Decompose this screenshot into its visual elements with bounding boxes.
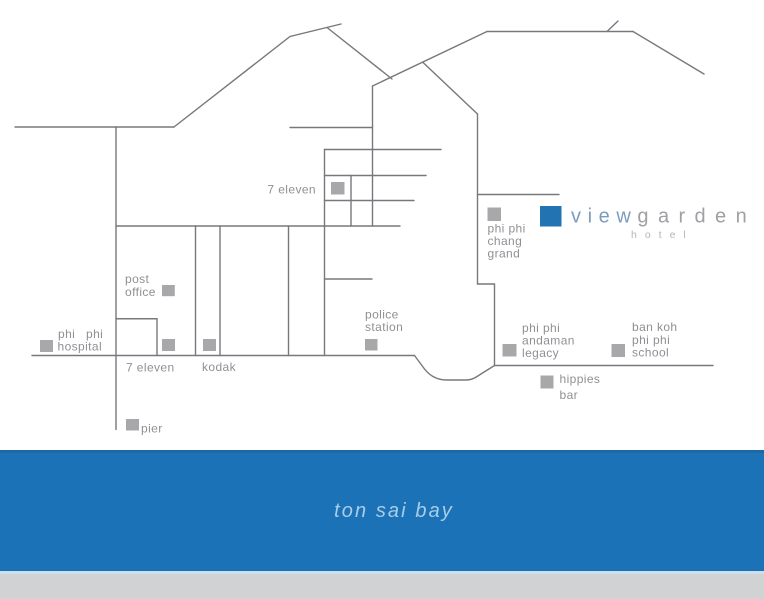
svg-text:ton sai bay: ton sai bay [334,500,454,522]
svg-text:hotel: hotel [631,229,694,241]
svg-text:school: school [632,346,669,360]
svg-text:post: post [125,272,150,286]
svg-text:grand: grand [488,247,521,261]
svg-text:hospital: hospital [58,340,103,354]
svg-text:kodak: kodak [202,360,237,374]
svg-text:7 eleven: 7 eleven [126,361,175,375]
svg-text:bar: bar [560,388,579,402]
svg-text:7 eleven: 7 eleven [267,183,316,197]
svg-text:hippies: hippies [560,372,601,386]
svg-text:viewgarden: viewgarden [571,206,756,228]
svg-text:ban koh: ban koh [632,320,678,334]
svg-text:station: station [365,320,403,334]
svg-text:office: office [125,285,156,299]
svg-text:legacy: legacy [522,346,559,360]
svg-text:pier: pier [141,422,163,436]
